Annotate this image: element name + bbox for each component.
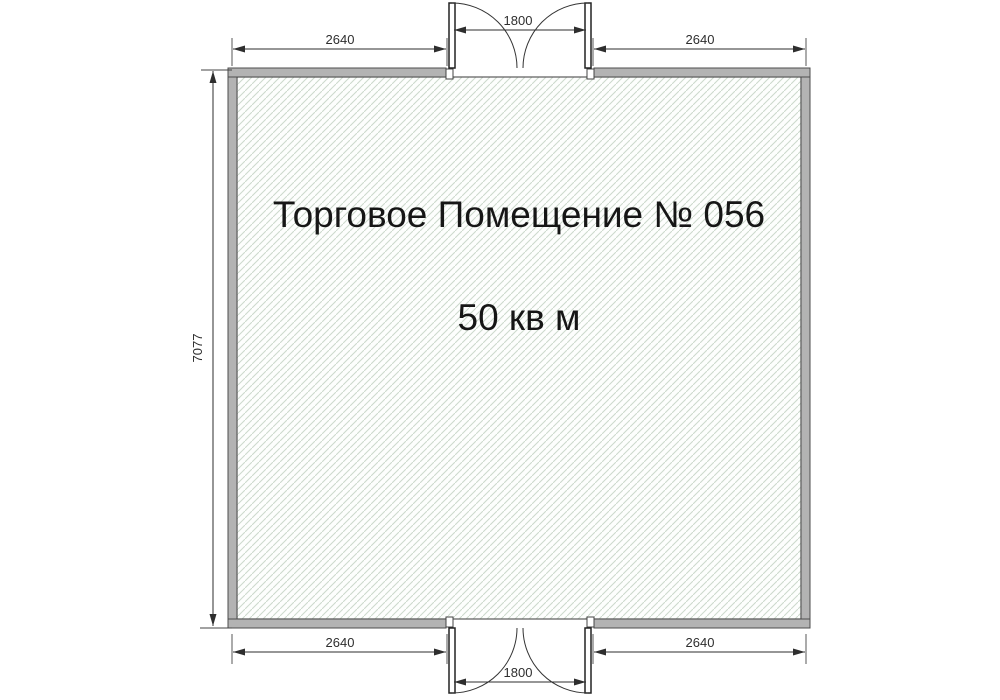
- dim-label-top-door: 1800: [504, 13, 533, 28]
- bottom-door-leaf-left: [449, 628, 455, 693]
- dim-label-bottom-right: 2640: [686, 635, 715, 650]
- door-jamb-top-right: [587, 69, 594, 79]
- bottom-door: [449, 628, 591, 693]
- wall-top-left: [228, 68, 446, 77]
- door-jamb-bottom-right: [587, 617, 594, 627]
- room-area: 50 кв м: [458, 297, 581, 338]
- top-door-swing-right: [523, 3, 588, 68]
- room-floor-hatch: [237, 77, 801, 619]
- dim-label-top-right: 2640: [686, 32, 715, 47]
- top-door-leaf-right: [585, 3, 591, 68]
- bottom-door-swing-left: [452, 628, 517, 693]
- dim-label-bottom-door: 1800: [504, 665, 533, 680]
- wall-bottom-left: [228, 619, 446, 628]
- dim-label-top-left: 2640: [326, 32, 355, 47]
- bottom-door-leaf-right: [585, 628, 591, 693]
- wall-left: [228, 68, 237, 628]
- floor-plan-canvas: 2640 1800 2640 7077 2640 1800 2640 Торго…: [0, 0, 1000, 700]
- wall-top-right: [594, 68, 810, 77]
- room-title: Торговое Помещение № 056: [273, 194, 765, 235]
- door-jamb-bottom-left: [446, 617, 453, 627]
- wall-right: [801, 68, 810, 628]
- wall-bottom-right: [594, 619, 810, 628]
- bottom-door-swing-right: [523, 628, 588, 693]
- door-jamb-top-left: [446, 69, 453, 79]
- floor-plan-drawing: 2640 1800 2640 7077 2640 1800 2640 Торго…: [0, 0, 1000, 700]
- top-door-leaf-left: [449, 3, 455, 68]
- dim-label-left: 7077: [190, 334, 205, 363]
- dim-label-bottom-left: 2640: [326, 635, 355, 650]
